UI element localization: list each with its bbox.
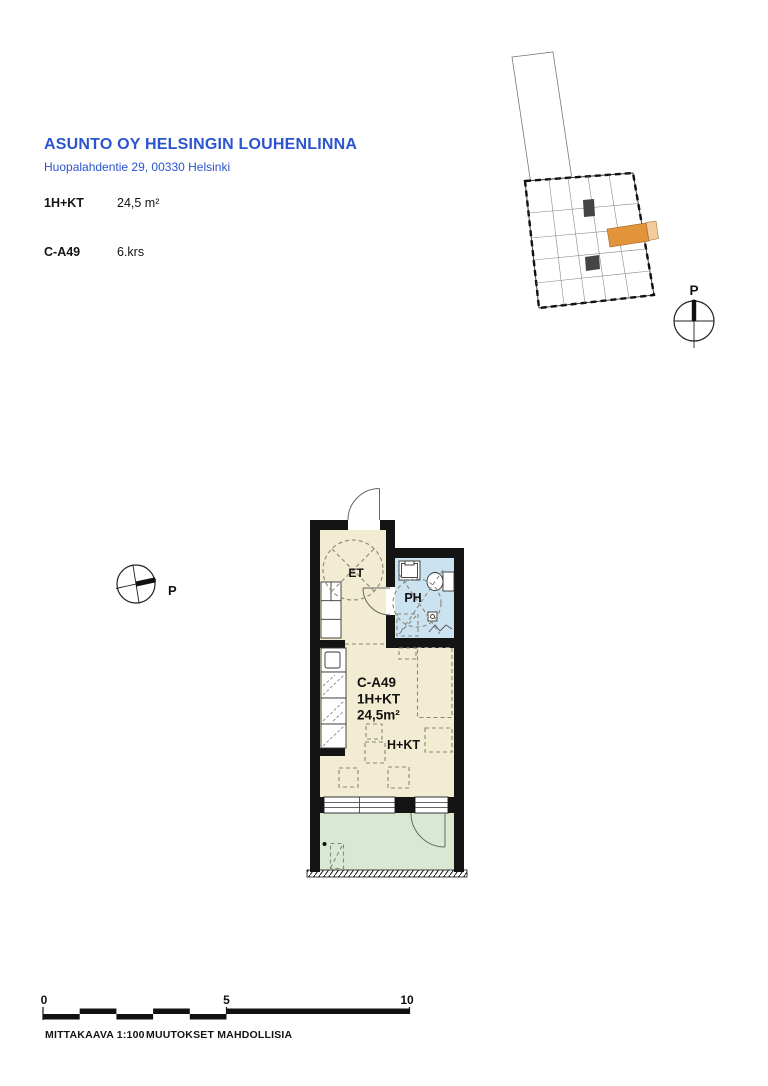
key-plan-lot-strip (512, 52, 573, 191)
unit-stamp-id: C-A49 (357, 675, 396, 690)
room-label-entry: ET (348, 566, 364, 580)
page-address: Huopalahdentie 29, 00330 Helsinki (44, 160, 230, 174)
unit-stamp-area: 24,5m² (357, 708, 400, 723)
page-title: ASUNTO OY HELSINGIN LOUHENLINNA (44, 136, 357, 154)
scale-text: MITTAKAAVA 1:100 (45, 1029, 145, 1041)
kitchen-units (321, 648, 346, 748)
north-bar (136, 580, 156, 584)
key-plan-building (525, 173, 659, 308)
north-bar (692, 300, 696, 322)
windows (324, 797, 448, 813)
north-arrow-plan: P (100, 548, 190, 620)
balcony-dot (323, 842, 327, 846)
apartment-area-value: 24,5 m² (117, 196, 159, 210)
balcony-railing (307, 870, 467, 877)
floor-plan-sheet: ASUNTO OY HELSINGIN LOUHENLINNA Huopalah… (0, 0, 768, 1086)
room-label-living: H+KT (387, 738, 420, 752)
north-letter: P (689, 283, 698, 298)
balcony-floor (320, 813, 454, 870)
key-plan (495, 45, 670, 320)
scale-tick-5: 5 (223, 993, 230, 1007)
scale-tick-0: 0 (41, 993, 48, 1007)
apartment-floor-plan: ET PH C-A49 1H+KT 24,5m² H+KT (305, 470, 475, 885)
entrance-door-swing (348, 489, 380, 521)
apartment-id-label: C-A49 (44, 245, 80, 259)
scale-tick-10: 10 (400, 993, 414, 1007)
room-label-bathroom: PH (404, 591, 421, 605)
changes-note: MUUTOKSET MAHDOLLISIA (146, 1029, 292, 1041)
north-letter: P (168, 583, 177, 598)
apartment-type-label: 1H+KT (44, 196, 84, 210)
toilet-tank (443, 572, 454, 591)
key-plan-core (583, 199, 595, 217)
key-plan-core-2 (585, 255, 600, 271)
apartment-floor-value: 6.krs (117, 245, 144, 259)
north-arrow-keyplan: P (665, 270, 725, 360)
unit-stamp-type: 1H+KT (357, 692, 401, 707)
